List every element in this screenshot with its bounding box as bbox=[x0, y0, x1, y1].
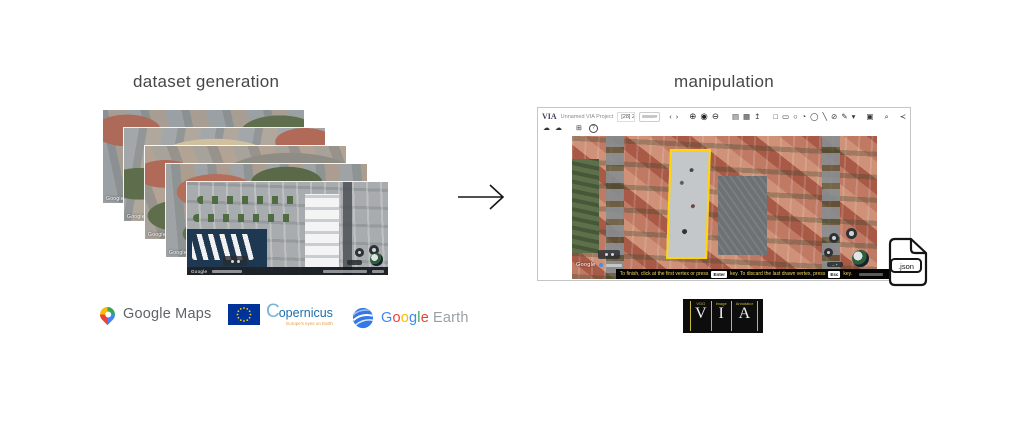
street-band bbox=[822, 136, 840, 279]
fine-print bbox=[372, 270, 384, 273]
tree-area bbox=[572, 159, 599, 253]
copernicus-c-swoosh: C bbox=[266, 302, 280, 321]
google-maps-logo: Google Maps bbox=[100, 306, 211, 322]
pegman-icon bbox=[355, 248, 364, 257]
google-earth-logo: G o o g l e Earth bbox=[352, 307, 469, 329]
via-logo-badge: VGG V Image I Annotator A bbox=[683, 299, 763, 333]
share-button[interactable]: ≺ bbox=[900, 113, 906, 121]
next-image-button[interactable]: › bbox=[676, 113, 679, 121]
circle-shape-button[interactable]: ○ bbox=[793, 113, 798, 121]
map-attribution: Google bbox=[576, 262, 622, 268]
white-tents bbox=[305, 194, 339, 267]
aerial-screenshot-5: Google bbox=[187, 182, 388, 275]
map-controls-icon bbox=[223, 256, 247, 266]
actual-size-button[interactable]: ◉ bbox=[700, 112, 707, 121]
info-dot-icon bbox=[599, 263, 603, 267]
current-file-label[interactable]: [28] 2C.PNG bbox=[617, 112, 635, 122]
zoom-pill bbox=[347, 260, 362, 265]
google-maps-wordmark: Google Maps bbox=[123, 306, 211, 322]
via-app-window: VIA Unnamed VIA Project [28] 2C.PNG ▾ ‹ … bbox=[537, 107, 911, 281]
settings-button[interactable]: ▣ bbox=[866, 113, 873, 121]
chevron-down-icon: ▾ bbox=[655, 114, 658, 120]
google-watermark: Google bbox=[127, 214, 145, 220]
status-bar: To finish, click at the first vertex or … bbox=[616, 269, 904, 279]
maps-pin-icon bbox=[97, 303, 118, 324]
google-watermark: Google bbox=[576, 262, 596, 268]
copernicus-tagline: Europe's eyes on Earth bbox=[286, 322, 333, 327]
esc-key-badge: Esc bbox=[828, 271, 840, 278]
attribution-bar: Google bbox=[187, 267, 388, 275]
import-export-button[interactable]: ↥ bbox=[754, 113, 760, 121]
cloud-download-button[interactable]: ☁ bbox=[543, 125, 550, 132]
zoom-in-button[interactable]: ⊕ bbox=[689, 112, 696, 121]
copernicus-wordmark: C opernicus Europe's eyes on Earth bbox=[266, 302, 333, 327]
rect-shape-button[interactable]: □ bbox=[773, 113, 778, 121]
google-earth-wordmark: G o o g l e Earth bbox=[381, 310, 469, 326]
google-watermark: Google bbox=[148, 232, 166, 238]
left-section-title: dataset generation bbox=[133, 72, 279, 92]
globe-icon bbox=[852, 250, 869, 267]
prev-image-button[interactable]: ‹ bbox=[669, 113, 672, 121]
line-shape-button[interactable]: ╲ bbox=[823, 113, 828, 121]
save-project-button[interactable]: ▦ bbox=[743, 113, 750, 121]
via-toolbar-row2: ☁ ☁ ⊞ ? bbox=[538, 123, 910, 134]
zoom-pill: ‒ + bbox=[827, 262, 843, 267]
earth-globe-icon bbox=[352, 307, 374, 329]
polygon-shape-button[interactable]: ⊘ bbox=[831, 113, 837, 121]
figure-canvas: dataset generation manipulation Google G… bbox=[0, 0, 1024, 434]
more-shapes-button[interactable]: ▾ bbox=[852, 113, 856, 121]
annotation-canvas[interactable]: Google ‒ + To finish, click at the first… bbox=[572, 136, 877, 279]
google-watermark: Google bbox=[169, 250, 187, 256]
fine-print bbox=[859, 273, 883, 276]
compass-icon bbox=[846, 228, 857, 239]
help-button[interactable]: ? bbox=[589, 124, 598, 133]
via-logo-text: VIA bbox=[542, 112, 557, 121]
fine-print bbox=[606, 264, 622, 267]
tilt-icon bbox=[824, 248, 833, 257]
dataset-image-stack: Google Google Google Google Google bbox=[103, 110, 395, 278]
google-watermark: Google bbox=[106, 196, 124, 202]
json-label: .json bbox=[898, 262, 914, 271]
status-text: key. To discard the last drawn vertex, p… bbox=[730, 271, 825, 277]
fine-print bbox=[212, 270, 242, 273]
via-badge-col: Image I bbox=[711, 301, 731, 331]
extreme-rect-shape-button[interactable]: ▭ bbox=[782, 113, 789, 121]
via-badge-col: VGG V bbox=[690, 301, 711, 331]
tree-row bbox=[193, 214, 297, 222]
filter-dropdown[interactable]: ▾ bbox=[639, 112, 661, 122]
project-name-input[interactable]: Unnamed VIA Project bbox=[561, 114, 614, 120]
extreme-circle-shape-button[interactable]: ◔ bbox=[802, 113, 807, 121]
ellipse-shape-button[interactable]: ◯ bbox=[810, 113, 818, 121]
dark-roof bbox=[718, 176, 767, 255]
google-watermark: Google bbox=[191, 269, 207, 274]
window-panel-button[interactable]: ⊞ bbox=[576, 125, 582, 132]
annotated-region-polygon[interactable] bbox=[666, 149, 711, 259]
cloud-upload-button[interactable]: ☁ bbox=[555, 125, 562, 132]
pegman-icon bbox=[829, 233, 839, 243]
status-text: key. bbox=[843, 271, 852, 277]
right-section-title: manipulation bbox=[674, 72, 774, 92]
flow-arrow bbox=[455, 178, 511, 216]
open-project-button[interactable]: ▤ bbox=[732, 113, 739, 121]
map-controls-icon bbox=[598, 250, 620, 259]
status-text: To finish, click at the first vertex or … bbox=[620, 271, 709, 277]
copernicus-logo: C opernicus Europe's eyes on Earth bbox=[228, 302, 333, 327]
globe-icon bbox=[370, 253, 383, 266]
tree-row bbox=[197, 196, 297, 204]
fine-print bbox=[323, 270, 367, 273]
via-badge-col: Annotator A bbox=[731, 301, 758, 331]
fine-print bbox=[642, 115, 655, 118]
enter-key-badge: Enter bbox=[711, 271, 727, 278]
via-toolbar: VIA Unnamed VIA Project [28] 2C.PNG ▾ ‹ … bbox=[538, 108, 910, 123]
polyline-shape-button[interactable]: ✎ bbox=[841, 113, 847, 121]
magnifier-button[interactable]: ⌕ bbox=[885, 113, 889, 121]
json-file-icon: .json bbox=[884, 236, 930, 293]
eu-flag-icon bbox=[228, 304, 260, 325]
zoom-out-button[interactable]: ⊖ bbox=[712, 112, 719, 121]
